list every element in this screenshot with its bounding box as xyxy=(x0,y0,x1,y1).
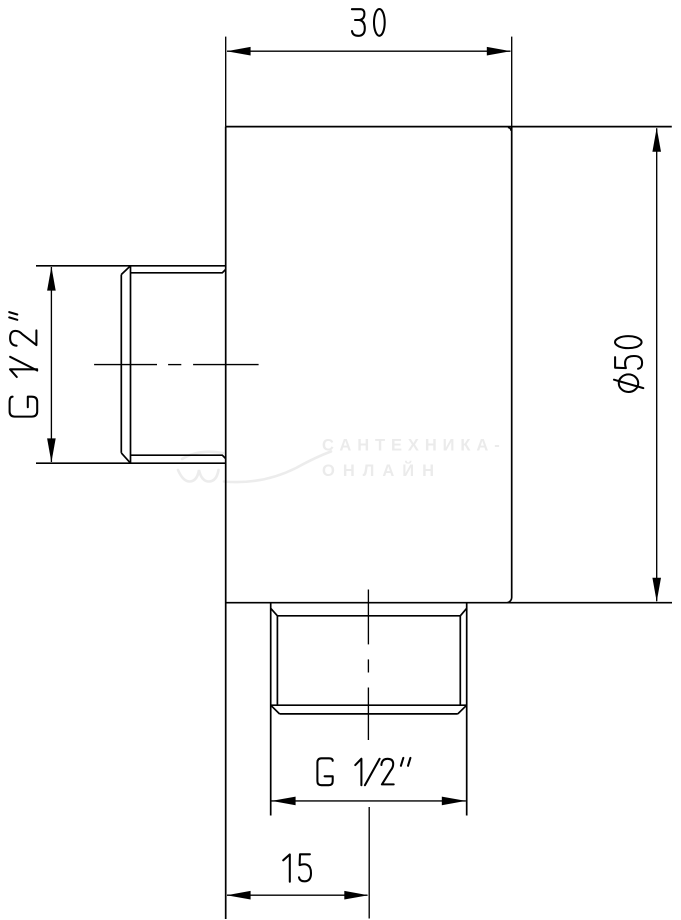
svg-text:САНТЕХНИКА-: САНТЕХНИКА- xyxy=(322,437,506,455)
svg-text:ОНЛАЙН: ОНЛАЙН xyxy=(322,461,442,480)
